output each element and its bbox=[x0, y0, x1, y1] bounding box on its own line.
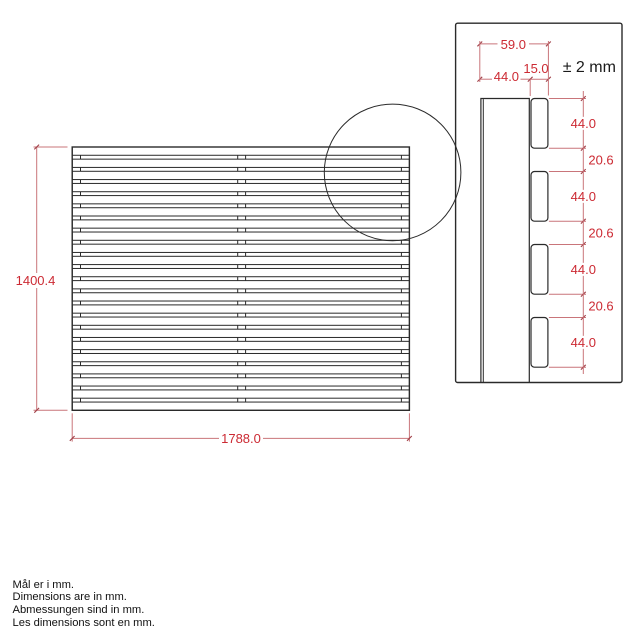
svg-text:20.6: 20.6 bbox=[588, 225, 613, 240]
svg-text:1400.4: 1400.4 bbox=[16, 273, 56, 288]
svg-text:1788.0: 1788.0 bbox=[221, 431, 261, 446]
svg-text:44.0: 44.0 bbox=[571, 335, 596, 350]
svg-text:± 2 mm: ± 2 mm bbox=[563, 59, 616, 76]
svg-text:15.0: 15.0 bbox=[523, 61, 548, 76]
svg-text:20.6: 20.6 bbox=[588, 152, 613, 167]
svg-text:44.0: 44.0 bbox=[571, 189, 596, 204]
svg-text:44.0: 44.0 bbox=[494, 69, 519, 84]
svg-text:20.6: 20.6 bbox=[588, 298, 613, 313]
svg-text:44.0: 44.0 bbox=[571, 116, 596, 131]
svg-text:59.0: 59.0 bbox=[501, 37, 526, 52]
svg-text:44.0: 44.0 bbox=[571, 262, 596, 277]
